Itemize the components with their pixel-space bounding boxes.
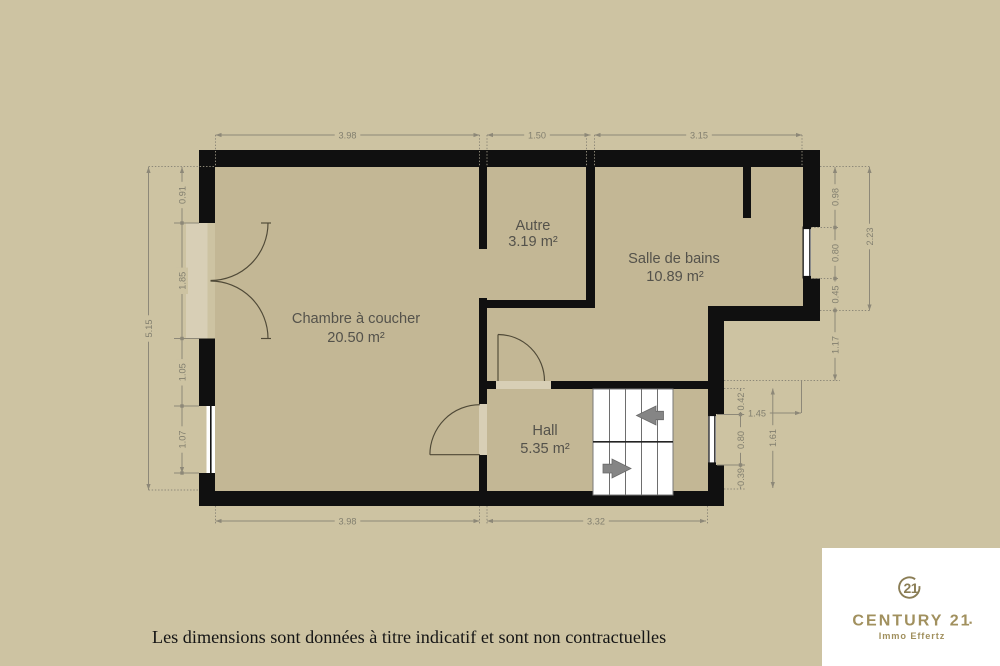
svg-text:Les dimensions sont données à: Les dimensions sont données à titre indi… (152, 627, 666, 647)
svg-text:3.32: 3.32 (587, 516, 605, 526)
svg-text:0.98: 0.98 (830, 188, 840, 206)
svg-text:0.80: 0.80 (736, 431, 746, 449)
svg-text:3.15: 3.15 (690, 130, 708, 140)
svg-text:Immo Effertz: Immo Effertz (879, 631, 945, 641)
svg-text:Chambre à coucher: Chambre à coucher (292, 311, 420, 327)
svg-text:1.45: 1.45 (748, 408, 766, 418)
svg-text:3.98: 3.98 (339, 516, 357, 526)
svg-text:CENTURY 21: CENTURY 21 (852, 612, 971, 629)
svg-text:21: 21 (904, 580, 919, 596)
svg-text:0.91: 0.91 (177, 186, 187, 204)
svg-text:Autre: Autre (516, 218, 551, 234)
svg-text:1.05: 1.05 (177, 363, 187, 381)
svg-text:1.61: 1.61 (768, 429, 778, 447)
svg-text:Salle de bains: Salle de bains (628, 251, 720, 267)
svg-text:1.85: 1.85 (177, 272, 187, 290)
svg-text:2.23: 2.23 (865, 228, 875, 246)
svg-text:1.17: 1.17 (830, 336, 840, 354)
svg-text:3.98: 3.98 (339, 130, 357, 140)
svg-text:3.19 m²: 3.19 m² (508, 234, 558, 250)
svg-text:10.89 m²: 10.89 m² (646, 269, 704, 285)
svg-text:Hall: Hall (532, 423, 557, 439)
svg-text:0.45: 0.45 (830, 286, 840, 304)
svg-text:1.50: 1.50 (528, 130, 546, 140)
svg-text:5.15: 5.15 (144, 320, 154, 338)
svg-text:0.80: 0.80 (830, 244, 840, 262)
svg-text:1.07: 1.07 (177, 431, 187, 449)
svg-text:20.50 m²: 20.50 m² (327, 330, 385, 346)
svg-text:5.35 m²: 5.35 m² (520, 441, 570, 457)
svg-text:0.39: 0.39 (736, 468, 746, 486)
